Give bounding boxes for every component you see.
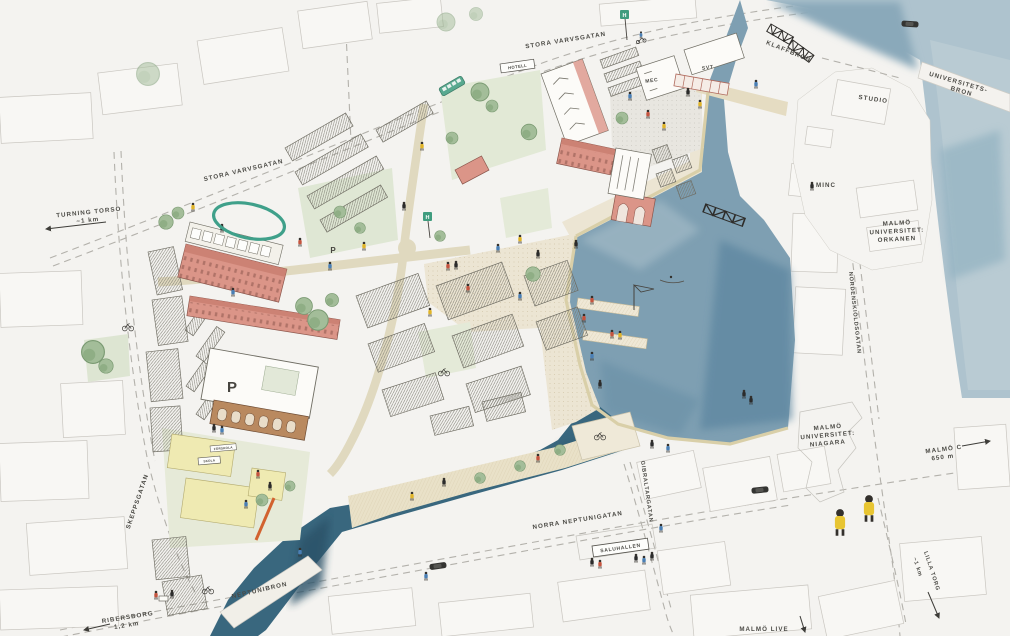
map-svg: H H HOTELL SALUHALLEN FÖRSKOLA SKOLA P P… (0, 0, 1010, 636)
parking-letter-small: P (330, 246, 336, 255)
bus-stop-letter: H (426, 215, 430, 221)
place-label-minc: MINC (816, 182, 836, 189)
car-icon (901, 20, 918, 27)
illustrated-map: H H HOTELL SALUHALLEN FÖRSKOLA SKOLA P P… (0, 0, 1010, 636)
place-label-orkanen-1: MALMÖ (882, 219, 911, 227)
skola-sign: SKOLA (198, 456, 221, 465)
place-label-malmo-live: MALMÖ LIVE (739, 626, 788, 633)
bus-stop-letter: H (623, 13, 627, 19)
parking-letter-large: P (227, 379, 237, 396)
white-studio-building (608, 148, 651, 200)
